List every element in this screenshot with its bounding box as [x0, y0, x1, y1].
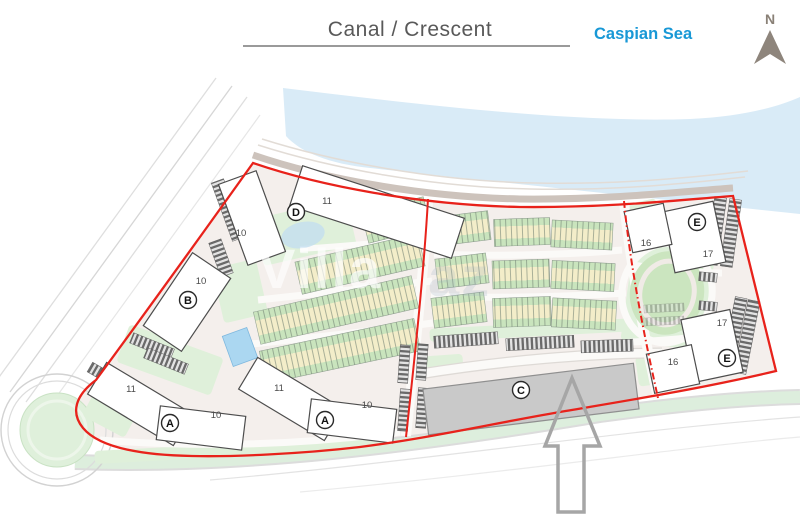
- svg-text:D: D: [292, 207, 300, 219]
- block-marker-A: A: [162, 415, 179, 432]
- unit-number: 17: [703, 249, 714, 260]
- townhouse-row: [493, 296, 552, 327]
- watermark-primary: Villa: [258, 237, 382, 300]
- townhouse-row: [551, 220, 613, 250]
- svg-text:A: A: [166, 418, 174, 430]
- north-arrow-icon: [754, 30, 786, 64]
- building-e2-side: [646, 345, 699, 394]
- north-arrow: N: [754, 11, 786, 64]
- parking-strip: [699, 272, 718, 283]
- unit-number: 10: [236, 228, 247, 239]
- block-marker-C: C: [513, 382, 530, 399]
- block-marker-E: E: [689, 214, 706, 231]
- site-plan-canvas: DBAACEE1110101110111016171716 N Villa az: [0, 0, 800, 517]
- page-title: Canal / Crescent: [240, 18, 580, 42]
- svg-text:C: C: [517, 385, 525, 397]
- block-marker-A: A: [317, 412, 334, 429]
- site-plan-page: DBAACEE1110101110111016171716 N Villa az…: [0, 0, 800, 517]
- block-marker-D: D: [288, 204, 305, 221]
- parking-strip: [581, 339, 633, 353]
- title-underline: [243, 45, 570, 47]
- watermark-secondary: az: [428, 245, 491, 308]
- townhouse-row: [494, 218, 551, 247]
- townhouse-row: [551, 298, 616, 330]
- caspian-sea-label: Caspian Sea: [594, 25, 714, 44]
- north-label: N: [765, 11, 775, 27]
- svg-text:A: A: [321, 415, 329, 427]
- townhouse-row: [492, 259, 550, 289]
- block-marker-E: E: [719, 350, 736, 367]
- unit-number: 11: [274, 383, 284, 394]
- townhouse-row: [551, 260, 615, 291]
- unit-number: 17: [717, 318, 728, 329]
- unit-number: 11: [322, 196, 332, 207]
- svg-text:E: E: [693, 217, 700, 229]
- unit-number: 16: [668, 357, 679, 368]
- unit-number: 11: [126, 384, 136, 395]
- unit-number: 16: [641, 238, 652, 249]
- block-marker-B: B: [180, 292, 197, 309]
- watermark: Villa az: [258, 237, 491, 308]
- unit-number: 10: [362, 400, 373, 411]
- svg-text:B: B: [184, 295, 192, 307]
- parking-strip: [699, 301, 718, 312]
- roundabout-island: [20, 393, 94, 467]
- unit-number: 10: [211, 410, 222, 421]
- unit-number: 10: [196, 276, 207, 287]
- svg-text:E: E: [723, 353, 730, 365]
